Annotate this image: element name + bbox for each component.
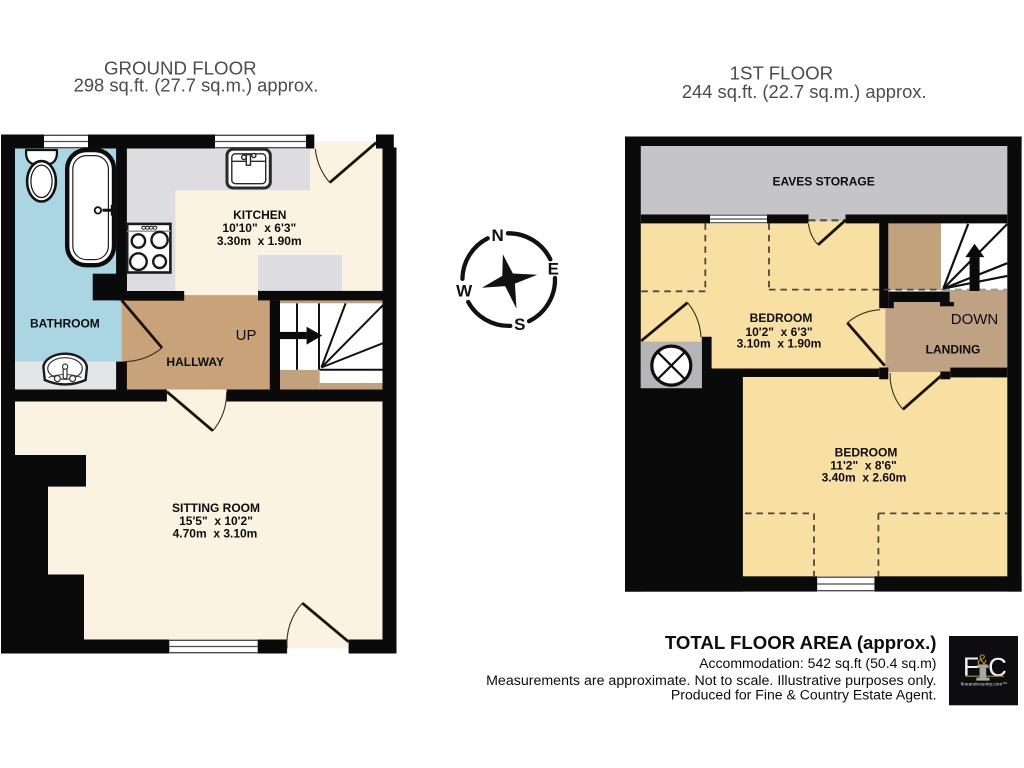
svg-text:244 sq.ft. (22.7 sq.m.) approx: 244 sq.ft. (22.7 sq.m.) approx. xyxy=(682,81,927,102)
svg-text:EAVES STORAGE: EAVES STORAGE xyxy=(772,174,874,188)
svg-text:LANDING: LANDING xyxy=(926,343,981,357)
svg-text:N: N xyxy=(491,226,503,245)
svg-text:Accommodation: 542 sq.ft (50.4: Accommodation: 542 sq.ft (50.4 sq.m) xyxy=(699,655,936,671)
svg-text:BATHROOM: BATHROOM xyxy=(30,316,100,330)
svg-text:HALLWAY: HALLWAY xyxy=(166,355,224,369)
svg-text:BEDROOM: BEDROOM xyxy=(750,311,813,325)
svg-text:298 sq.ft. (27.7 sq.m.) approx: 298 sq.ft. (27.7 sq.m.) approx. xyxy=(74,75,319,96)
svg-text:10'10" x 6'3": 10'10" x 6'3" xyxy=(222,221,296,235)
svg-text:W: W xyxy=(456,282,473,301)
svg-text:3.40m x 2.60m: 3.40m x 2.60m xyxy=(822,470,907,484)
svg-text:S: S xyxy=(514,315,525,334)
svg-text:C: C xyxy=(988,652,1007,682)
svg-text:TOTAL FLOOR AREA (approx.): TOTAL FLOOR AREA (approx.) xyxy=(665,632,937,653)
svg-text:E: E xyxy=(548,260,559,279)
svg-text:SITTING ROOM: SITTING ROOM xyxy=(172,501,260,515)
svg-text:3.10m x 1.90m: 3.10m x 1.90m xyxy=(737,337,822,351)
svg-text:fineandcountry.com™: fineandcountry.com™ xyxy=(961,681,1008,687)
svg-text:KITCHEN: KITCHEN xyxy=(233,208,286,222)
svg-text:4.70m x 3.10m: 4.70m x 3.10m xyxy=(173,526,258,540)
svg-text:3.30m x 1.90m: 3.30m x 1.90m xyxy=(217,234,302,248)
svg-text:DOWN: DOWN xyxy=(951,311,999,328)
svg-text:UP: UP xyxy=(236,327,257,344)
svg-text:Produced for Fine & Country Es: Produced for Fine & Country Estate Agent… xyxy=(671,687,937,703)
